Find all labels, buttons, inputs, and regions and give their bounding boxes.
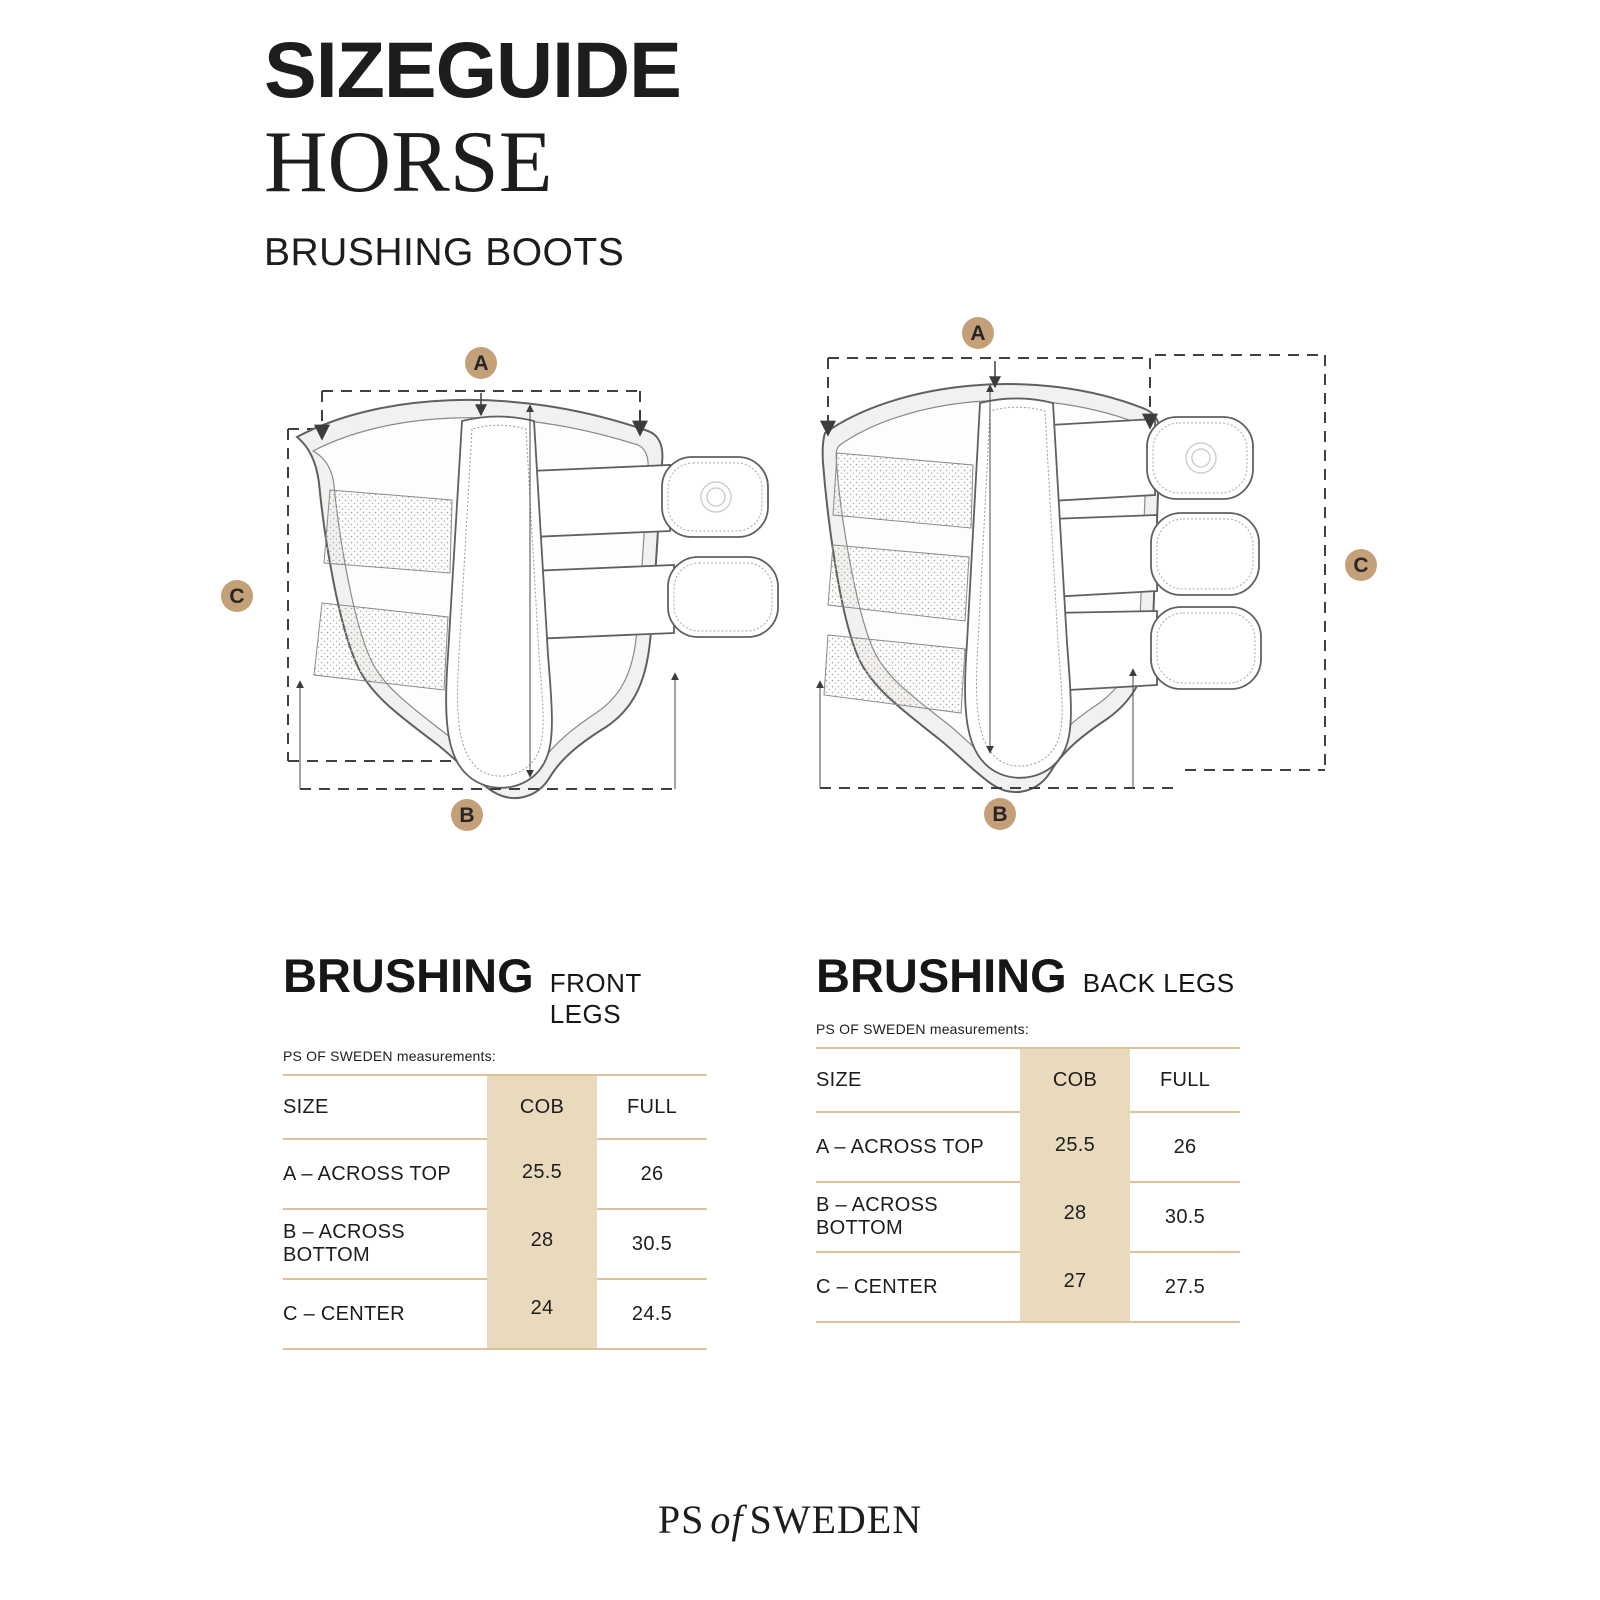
full-column: FULL 26 30.5 24.5	[597, 1076, 707, 1348]
column-header-cob: COB	[487, 1076, 597, 1138]
table-legs-label: FRONT LEGS	[550, 968, 707, 1030]
column-header-full: FULL	[597, 1076, 707, 1140]
back-table-heading: BRUSHING BACK LEGS	[816, 948, 1240, 1003]
cob-column: COB 25.5 28 24	[487, 1076, 597, 1348]
marker-c-label: C	[229, 585, 244, 608]
cob-value: 28	[1020, 1179, 1130, 1247]
sizeguide-page: { "header": { "title_line1": "SIZEGUIDE"…	[0, 0, 1600, 1600]
brand-ps: PS	[658, 1497, 705, 1542]
size-column: SIZE A – ACROSS TOP B – ACROSS BOTTOM C …	[283, 1076, 487, 1348]
back-legs-table: BRUSHING BACK LEGS PS OF SWEDEN measurem…	[816, 948, 1240, 1323]
elastic-band	[324, 490, 452, 573]
measurements-note: PS OF SWEDEN measurements:	[816, 1021, 1240, 1037]
full-value: 27.5	[1130, 1253, 1240, 1321]
marker-b-label: B	[459, 804, 474, 827]
column-header-full: FULL	[1130, 1049, 1240, 1113]
front-boot-diagram: A B C	[200, 325, 820, 870]
cob-value: 25.5	[1020, 1111, 1130, 1179]
marker-b-label: B	[992, 803, 1007, 826]
column-header-cob: COB	[1020, 1049, 1130, 1111]
title-block: SIZEGUIDE HORSE BRUSHING BOOTS	[264, 30, 681, 275]
table-legs-label: BACK LEGS	[1083, 968, 1235, 999]
table-title: BRUSHING	[816, 948, 1067, 1003]
elastic-band	[314, 603, 448, 690]
elastic-band	[833, 453, 973, 528]
boot-body	[823, 384, 1261, 792]
cob-value: 28	[487, 1206, 597, 1274]
cob-column: COB 25.5 28 27	[1020, 1049, 1130, 1321]
full-value: 30.5	[1130, 1183, 1240, 1253]
row-label: C – CENTER	[816, 1253, 1020, 1321]
boot-body	[297, 400, 778, 798]
measurements-note: PS OF SWEDEN measurements:	[283, 1048, 707, 1064]
row-label: C – CENTER	[283, 1280, 487, 1348]
column-header-size: SIZE	[816, 1049, 1020, 1113]
full-column: FULL 26 30.5 27.5	[1130, 1049, 1240, 1321]
size-table: SIZE A – ACROSS TOP B – ACROSS BOTTOM C …	[816, 1047, 1240, 1323]
size-column: SIZE A – ACROSS TOP B – ACROSS BOTTOM C …	[816, 1049, 1020, 1321]
full-value: 26	[597, 1140, 707, 1210]
back-boot-diagram: A B C	[795, 313, 1415, 868]
cob-value: 25.5	[487, 1138, 597, 1206]
front-table-heading: BRUSHING FRONT LEGS	[283, 948, 707, 1030]
full-value: 24.5	[597, 1280, 707, 1348]
page-title: SIZEGUIDE	[264, 30, 681, 109]
column-header-size: SIZE	[283, 1076, 487, 1140]
marker-c-label: C	[1353, 554, 1368, 577]
page-title-horse: HORSE	[264, 119, 681, 207]
elastic-band	[824, 635, 965, 713]
marker-a-label: A	[473, 352, 488, 375]
full-value: 30.5	[597, 1210, 707, 1280]
cob-value: 24	[487, 1274, 597, 1342]
page-subtitle: BRUSHING BOOTS	[264, 231, 681, 275]
row-label: B – ACROSS BOTTOM	[816, 1183, 1020, 1253]
cob-value: 27	[1020, 1247, 1130, 1315]
brand-logo: PSofSWEDEN	[0, 1496, 1580, 1543]
brand-sweden: SWEDEN	[749, 1497, 922, 1542]
row-label: B – ACROSS BOTTOM	[283, 1210, 487, 1280]
boot-diagrams: A B C	[200, 325, 1420, 885]
brand-of: of	[704, 1497, 749, 1542]
row-label: A – ACROSS TOP	[816, 1113, 1020, 1183]
row-label: A – ACROSS TOP	[283, 1140, 487, 1210]
strap	[1050, 417, 1261, 691]
table-title: BRUSHING	[283, 948, 534, 1003]
size-table: SIZE A – ACROSS TOP B – ACROSS BOTTOM C …	[283, 1074, 707, 1350]
full-value: 26	[1130, 1113, 1240, 1183]
front-legs-table: BRUSHING FRONT LEGS PS OF SWEDEN measure…	[283, 948, 707, 1350]
marker-a-label: A	[970, 322, 985, 345]
